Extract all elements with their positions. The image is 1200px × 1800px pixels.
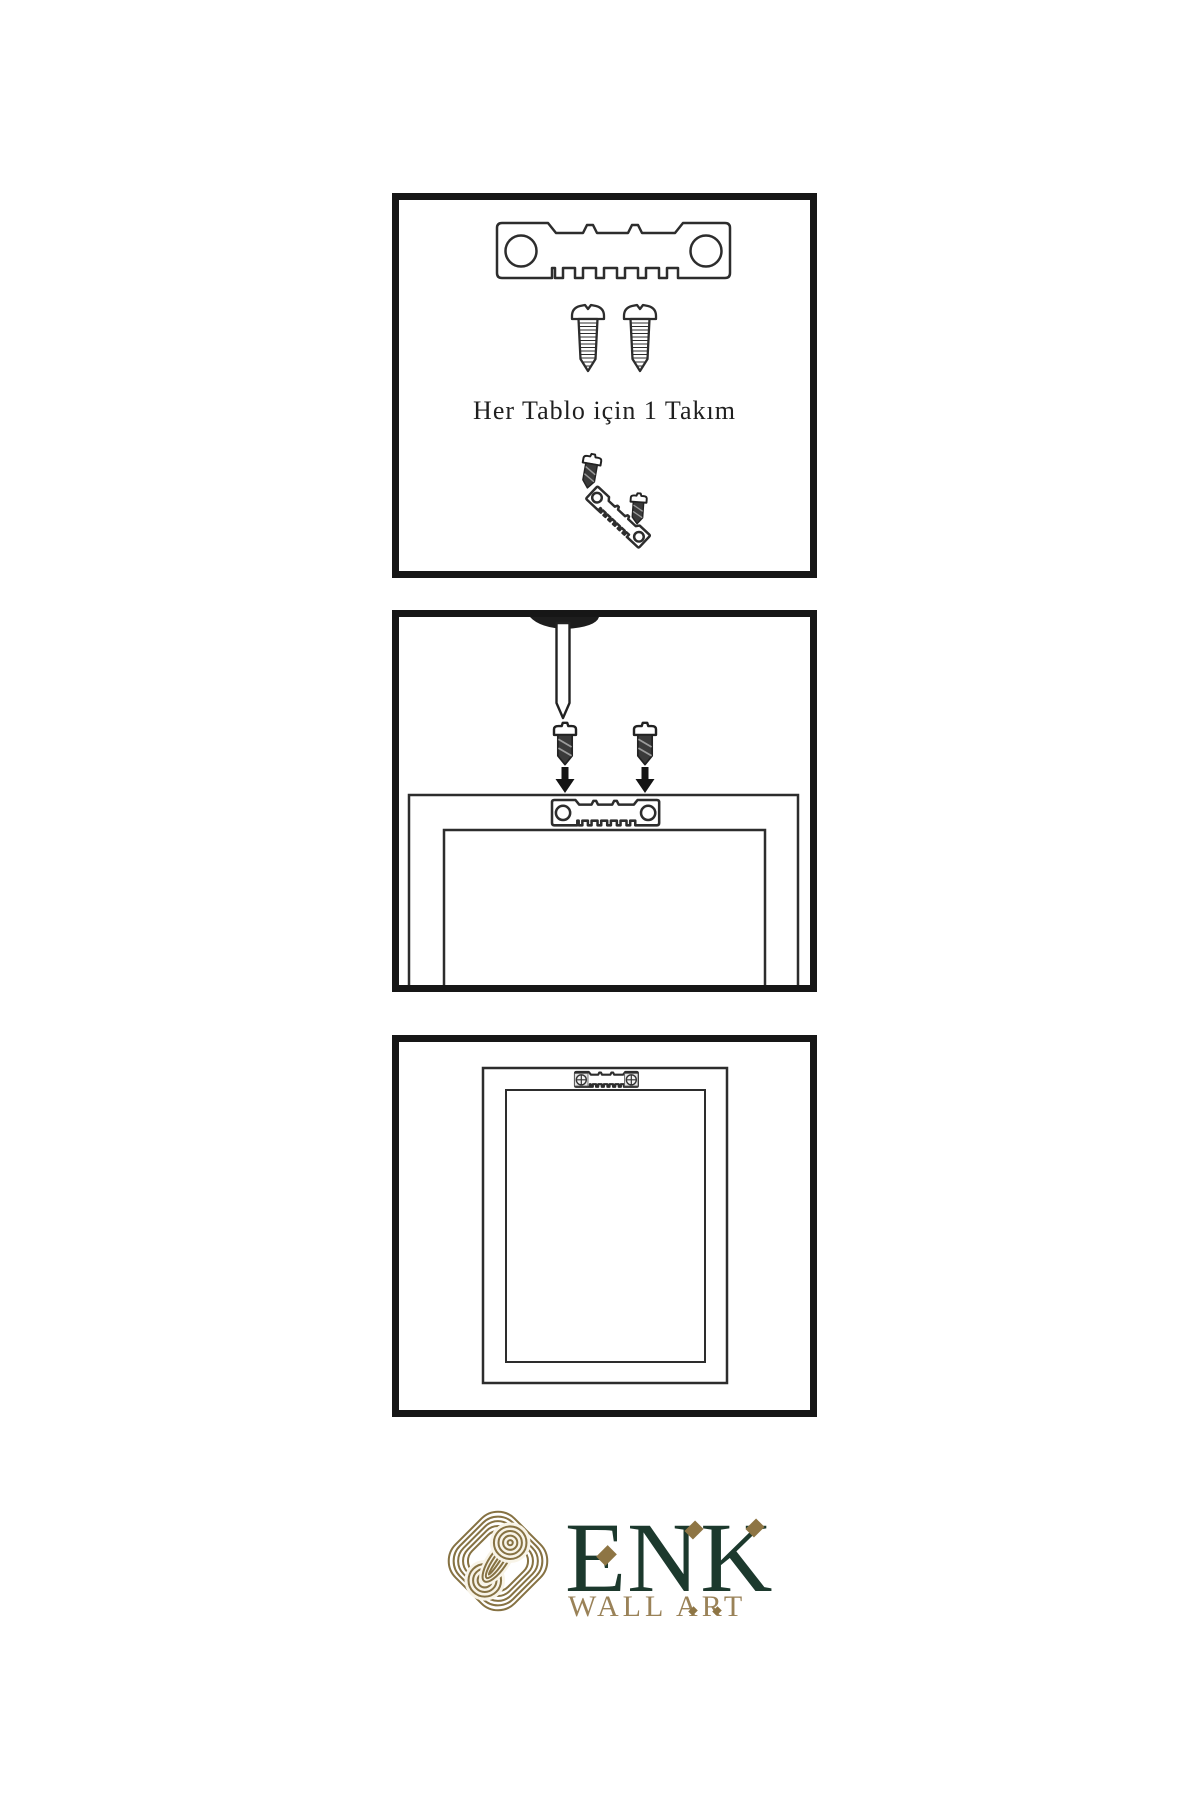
attach-hanger-drawing bbox=[399, 617, 810, 985]
nail-icon bbox=[530, 617, 599, 718]
down-arrow-icon bbox=[556, 767, 575, 793]
step-panel-hardware-kit: Her Tablo için 1 Takım bbox=[392, 193, 817, 578]
hardware-kit-drawing bbox=[399, 200, 810, 571]
phillips-screw-icon bbox=[576, 1075, 586, 1085]
dark-screw-icon bbox=[634, 723, 656, 765]
frame-back-icon bbox=[409, 795, 798, 985]
brand-tagline: WALL ART bbox=[568, 1590, 746, 1624]
installed-sawtooth-hanger-icon bbox=[575, 1072, 639, 1087]
screw-icon bbox=[624, 305, 656, 371]
frame-back-icon bbox=[483, 1068, 727, 1383]
kit-caption: Her Tablo için 1 Takım bbox=[399, 396, 810, 426]
step-panel-attach-hanger bbox=[392, 610, 817, 992]
sawtooth-hanger-icon bbox=[497, 223, 730, 278]
step-panel-frame-mounted bbox=[392, 1035, 817, 1417]
brand-logo: ENK WALL ART bbox=[437, 1498, 807, 1638]
interlaced-knot-icon bbox=[437, 1500, 559, 1622]
sawtooth-hanger-icon bbox=[552, 800, 659, 825]
screw-icon bbox=[572, 305, 604, 371]
screw-into-tilted-hanger-icon bbox=[579, 453, 651, 548]
instruction-sheet: Her Tablo için 1 Takım bbox=[0, 0, 1200, 1800]
dark-screw-icon bbox=[554, 723, 576, 765]
mounted-frame-drawing bbox=[399, 1042, 810, 1410]
down-arrow-icon bbox=[636, 767, 655, 793]
phillips-screw-icon bbox=[626, 1075, 636, 1085]
